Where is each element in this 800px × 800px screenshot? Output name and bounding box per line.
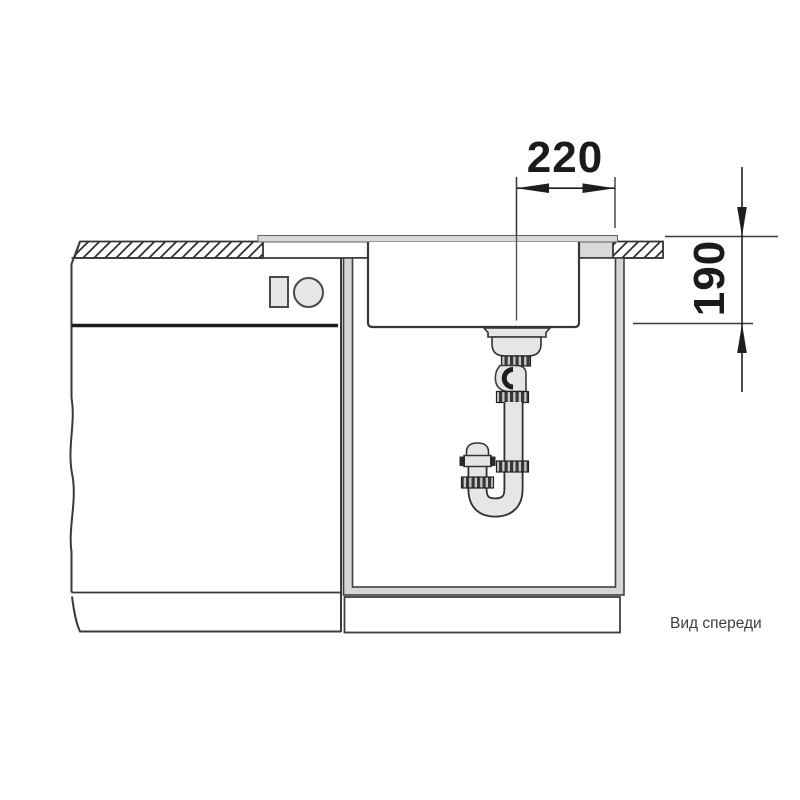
dim220-arrowhead-right xyxy=(583,183,616,193)
dimension-depth-label: 190 xyxy=(688,223,732,333)
dimension-width-220 xyxy=(517,177,616,236)
cabinet-knob-circle xyxy=(294,278,323,307)
view-caption: Вид спереди xyxy=(670,615,800,633)
coupling-nut-1 xyxy=(502,356,531,366)
dim220-arrowhead-left xyxy=(517,183,550,193)
sink-rim-strip xyxy=(258,236,618,243)
trap-arm-cap xyxy=(467,443,489,456)
cabinet-handle-rect xyxy=(270,277,288,307)
countertop-hatch-left xyxy=(75,242,264,259)
coupling-nut-3 xyxy=(497,461,529,472)
sink-bowl-outline xyxy=(368,242,579,327)
drain-flange xyxy=(484,328,550,337)
dimension-width-label: 220 xyxy=(514,136,616,180)
trap-arm-lug-left xyxy=(460,457,466,467)
left-cabinet xyxy=(70,242,341,633)
trap-arm-lug-right xyxy=(490,457,496,467)
dim190-arrowhead-down xyxy=(737,207,747,237)
coupling-nut-2 xyxy=(497,392,529,403)
left-cabinet-left-edge-break-line xyxy=(70,242,80,593)
sink-flange-section-right xyxy=(579,242,613,258)
technical-drawing-canvas: 220 190 Вид спереди xyxy=(0,0,800,800)
sink-bowl xyxy=(368,177,579,327)
dim190-arrowhead-up xyxy=(737,324,747,354)
countertop-hatch-right xyxy=(613,242,663,259)
left-cabinet-plinth-outline xyxy=(72,597,341,632)
sink-cabinet-plinth xyxy=(345,597,621,633)
coupling-nut-4 xyxy=(462,477,494,488)
sink-front-view-drawing xyxy=(0,0,800,800)
trap-arm-collar xyxy=(464,456,491,467)
drain-cup xyxy=(492,337,541,356)
